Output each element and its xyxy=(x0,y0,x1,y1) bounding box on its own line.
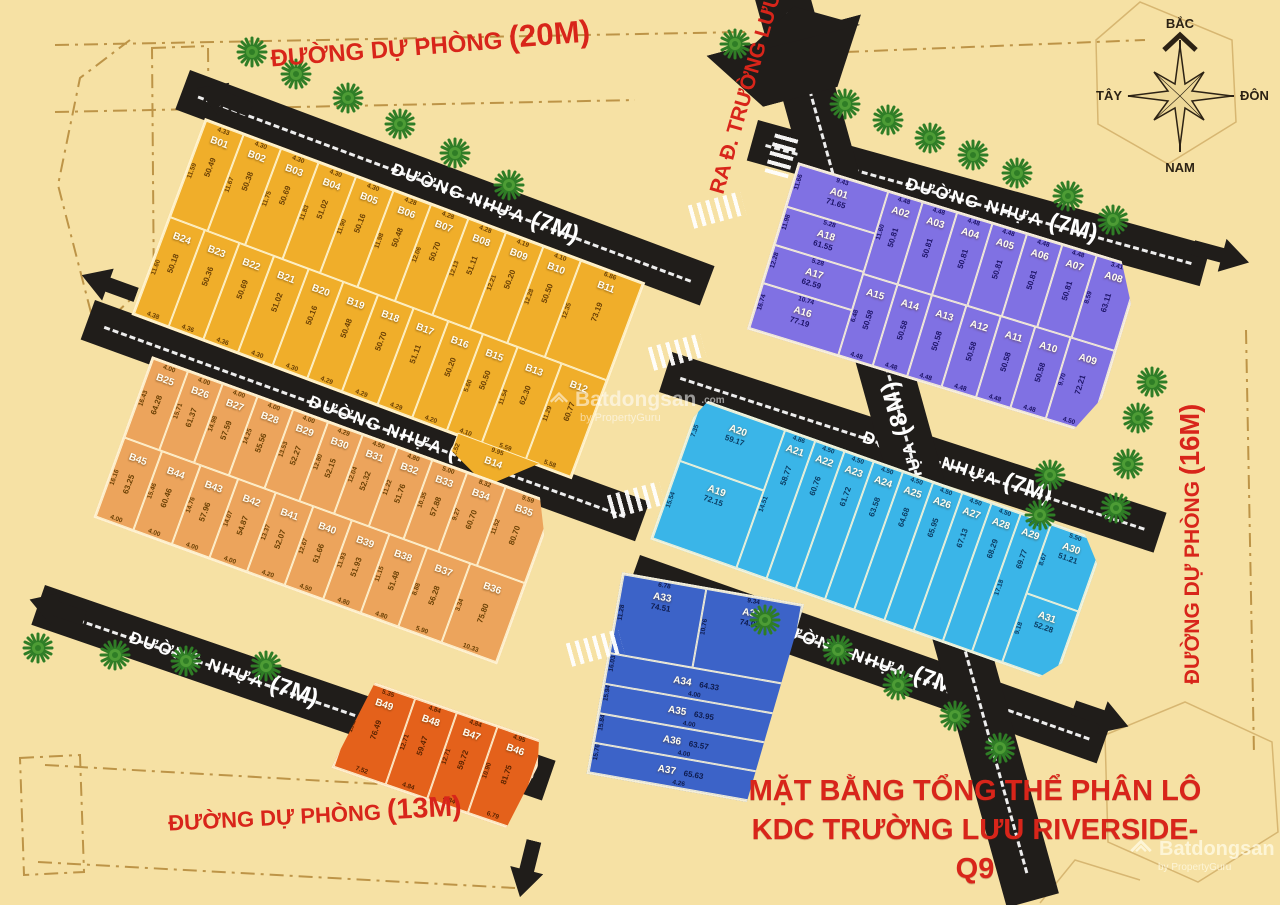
plot-id-label: B16 xyxy=(449,335,470,352)
plot-width-label: 4.28 xyxy=(441,210,455,221)
plot-id-label: A29 xyxy=(1020,526,1041,542)
compass-west-label: TÂY xyxy=(1096,88,1122,103)
plot-width-label: 4.29 xyxy=(354,388,368,399)
plot-width-label: 4.19 xyxy=(516,238,530,249)
plot-width-label: 4.30 xyxy=(291,154,305,165)
plot-id-label: A35 xyxy=(667,704,687,718)
plot-depth-label: 16.74 xyxy=(756,294,767,312)
plot-id-label: A27 xyxy=(961,505,982,521)
plot-id-label: B10 xyxy=(545,261,566,278)
plot-id-label: A13 xyxy=(934,308,955,324)
plot-area-label: 64.68 xyxy=(896,506,911,528)
plot-width-label: 4.48 xyxy=(932,207,946,217)
plot-area-label: 63.95 xyxy=(693,710,714,722)
plot-area-label: 51.02 xyxy=(315,198,330,220)
plot-area-label: 51.76 xyxy=(393,483,408,505)
plot-area-label: 80.70 xyxy=(507,524,522,546)
plot-id-label: A06 xyxy=(1029,247,1050,263)
plot-id-label: A05 xyxy=(994,237,1015,253)
plot-area-label: 50.70 xyxy=(427,240,442,262)
plot-depth-label: 15.84 xyxy=(597,714,607,731)
plot-width-label: 4.50 xyxy=(909,476,923,487)
label-reserve-road-16m: ĐƯỜNG DỰ PHÒNG (16M) xyxy=(1174,364,1206,724)
plot-width-label: 5.90 xyxy=(415,625,429,636)
plot-area-label: 57.88 xyxy=(428,495,443,517)
site-plan-map: ĐƯỜNG NHỰA (7M) ĐƯỜNG NHỰA (7M) ĐƯỜNG NH… xyxy=(0,0,1280,905)
plot-depth-label: 11.59 xyxy=(186,162,198,179)
plot-width-label: 4.38 xyxy=(146,310,160,321)
plot-width-label: 4.20 xyxy=(424,414,438,425)
plot-area-label: 52.27 xyxy=(288,445,303,467)
plot-width-label: 4.48 xyxy=(988,393,1002,403)
plot-width-label: 4.48 xyxy=(884,361,898,371)
plot-id-label: B20 xyxy=(310,283,331,300)
plot-width-label: 8.32 xyxy=(478,479,492,490)
plot-id-label: B06 xyxy=(396,205,417,222)
plot-width-label: 4.29 xyxy=(389,401,403,412)
plot-area-label: 50.16 xyxy=(352,212,367,234)
plot-area-label: 64.33 xyxy=(698,680,719,692)
plot-area-label: 51.11 xyxy=(408,344,423,365)
plot-area-label: 50.81 xyxy=(990,259,1004,281)
plot-width-label: 6.78 xyxy=(658,582,672,591)
plot-area-label: 81.75 xyxy=(499,764,514,786)
plot-width-label: 4.28 xyxy=(403,196,417,207)
plot-width-label: 4.36 xyxy=(181,323,195,334)
plot-depth-label: 8.88 xyxy=(412,582,423,596)
plot-width-label: 4.36 xyxy=(215,336,229,347)
plot-width-label: 4.26 xyxy=(672,779,686,788)
plot-area-label: 51.66 xyxy=(311,542,326,564)
plot-id-label: B21 xyxy=(275,270,296,287)
plot-id-label: A21 xyxy=(784,443,805,459)
plot-width-label: 5.50 xyxy=(1068,532,1082,543)
plot-area-label: 50.70 xyxy=(373,330,388,352)
plot-id-label: B31 xyxy=(364,448,385,465)
plot-id-label: B32 xyxy=(399,461,420,478)
plot-area-label: 52.07 xyxy=(273,529,288,551)
plot-id-label: B18 xyxy=(380,309,401,326)
plot-width-label: 4.50 xyxy=(968,497,982,508)
plot-width-label: 4.80 xyxy=(406,453,420,464)
plot-id-label: A28 xyxy=(990,516,1011,532)
plot-area-label: 50.49 xyxy=(202,156,217,178)
plot-width-label: 4.50 xyxy=(821,445,835,456)
plot-area-label: 60.77 xyxy=(562,401,577,423)
plot-depth-label: 9.18 xyxy=(1013,621,1024,635)
plot-width-label: 4.84 xyxy=(468,719,482,730)
plot-id-label: B24 xyxy=(171,231,192,248)
plot-id-label: B37 xyxy=(433,563,454,580)
title-line1: MẶT BẰNG TỔNG THỂ PHÂN LÔ xyxy=(735,772,1215,811)
plot-area-label: 56.28 xyxy=(427,585,442,607)
plot-id-label: A15 xyxy=(865,286,886,302)
plot-width-label: 9.43 xyxy=(835,177,849,187)
plot-width-label: 4.00 xyxy=(223,555,237,566)
plot-depth-label: 6.48 xyxy=(849,309,859,323)
title-line2: KDC TRƯỜNG LƯU RIVERSIDE-Q9 xyxy=(735,811,1215,889)
plot-area-label: 73.19 xyxy=(589,301,604,323)
plot-area-label: 50.48 xyxy=(339,317,354,339)
plot-id-label: B13 xyxy=(523,362,544,379)
plot-area-label: 51.02 xyxy=(269,291,284,313)
plot-id-label: A34 xyxy=(672,675,692,689)
plot-area-label: 62.30 xyxy=(517,384,532,406)
plot-width-label: 4.48 xyxy=(966,217,980,227)
plot-width-label: 9.59 xyxy=(521,494,535,505)
plot-width-label: 4.48 xyxy=(1001,228,1015,238)
plot-width-label: 5.28 xyxy=(822,219,836,229)
plot-area-label: 65.95 xyxy=(926,517,941,539)
plot-id-label: A09 xyxy=(1077,351,1098,367)
plot-id-label: B11 xyxy=(596,279,617,296)
plot-depth-label: 15.76 xyxy=(592,744,602,761)
plot-width-label: 5.58 xyxy=(543,459,557,470)
plot-area-label: 50.50 xyxy=(539,282,554,304)
plot-id-label: B29 xyxy=(294,423,315,440)
plot-id-label: B30 xyxy=(329,436,350,453)
plot-id-label: B27 xyxy=(224,398,245,415)
plot-id-label: B34 xyxy=(470,487,491,504)
plot-width-label: 4.00 xyxy=(267,402,281,413)
plot-width-label: 4.10 xyxy=(553,252,567,263)
plot-width-label: 4.20 xyxy=(261,569,275,580)
plot-width-label: 4.30 xyxy=(254,140,268,151)
plot-area-label: 50.50 xyxy=(477,369,492,391)
plot-area-label: 67.13 xyxy=(955,527,970,549)
plot-area-label: 63.11 xyxy=(1099,292,1113,313)
plot-area-label: 50.81 xyxy=(1025,269,1039,291)
plot-id-label: B15 xyxy=(484,347,505,364)
plot-area-label: 50.69 xyxy=(234,278,249,300)
plot-width-label: 4.48 xyxy=(1071,249,1085,259)
plot-area-label: 51.93 xyxy=(348,556,363,578)
plot-depth-label: 15.54 xyxy=(665,491,677,509)
plot-width-label: 4.50 xyxy=(851,455,865,466)
plot-area-label: 54.87 xyxy=(235,515,250,537)
plot-id-label: A04 xyxy=(960,226,981,242)
plot-area-label: 59.72 xyxy=(455,749,470,771)
compass-east-label: ĐÔNG xyxy=(1240,88,1268,103)
plot-depth-label: 8.67 xyxy=(1037,552,1048,566)
plot-width-label: 4.00 xyxy=(162,364,176,375)
plot-area-label: 61.72 xyxy=(837,486,852,508)
plot-id-label: B35 xyxy=(513,503,534,520)
plot-width-label: 4.50 xyxy=(298,583,312,594)
plot-area-label: 50.69 xyxy=(277,184,292,206)
plot-area-label: 50.58 xyxy=(964,340,978,362)
plot-id-label: B40 xyxy=(317,520,338,537)
plot-depth-label: 11.66 xyxy=(793,174,804,191)
plot-width-label: 4.80 xyxy=(374,610,388,621)
plot-width-label: 4.95 xyxy=(512,734,526,745)
plot-id-label: B28 xyxy=(259,410,280,427)
plot-id-label: B02 xyxy=(246,149,267,166)
plot-bottom-label: 4.84 xyxy=(401,781,415,792)
plot-id-label: B36 xyxy=(482,581,503,598)
plot-width-label: 4.80 xyxy=(336,596,350,607)
plot-width-label: 4.00 xyxy=(232,389,246,400)
plot-width-label: 4.50 xyxy=(939,487,953,498)
plot-area-label: 50.81 xyxy=(886,227,900,249)
plot-area-label: 50.58 xyxy=(860,308,874,330)
plot-area-label: 65.63 xyxy=(683,769,704,781)
plot-area-label: 50.58 xyxy=(999,351,1013,373)
map-title: MẶT BẰNG TỔNG THỂ PHÂN LÔ KDC TRƯỜNG LƯU… xyxy=(735,772,1215,889)
plot-width-label: 4.50 xyxy=(1027,518,1041,529)
plot-depth-label: 10.76 xyxy=(700,619,710,636)
plot-id-label: A07 xyxy=(1064,258,1085,274)
plot-area-label: 75.80 xyxy=(476,602,491,624)
plot-depth-label: 15.94 xyxy=(602,684,612,701)
plot-area-label: 69.77 xyxy=(1014,548,1029,570)
plot-area-label: 60.70 xyxy=(464,509,479,531)
plot-area-label: 52.32 xyxy=(358,470,373,492)
plot-id-label: A11 xyxy=(1004,329,1024,345)
compass-rose: BẮC NAM TÂY ĐÔNG xyxy=(1092,14,1268,182)
plot-depth-label: 5.60 xyxy=(463,378,474,392)
plot-area-label: 61.37 xyxy=(183,407,198,429)
plot-area-label: 50.48 xyxy=(389,226,404,248)
plot-id-label: B09 xyxy=(508,247,529,264)
plot-id-label: A23 xyxy=(843,464,864,480)
plot-id-label: A22 xyxy=(814,453,835,469)
plot-area-label: 50.58 xyxy=(1033,361,1047,383)
plot-area-label: 57.59 xyxy=(218,419,233,441)
plot-area-label: 51.11 xyxy=(464,255,479,276)
plot-width-label: 9.34 xyxy=(747,597,761,606)
plot-id-label: B26 xyxy=(189,385,210,402)
plot-depth-label: 8.59 xyxy=(1083,291,1093,305)
plot-area-label: 50.81 xyxy=(955,248,969,270)
plot-id-label: B23 xyxy=(206,244,227,261)
plot-id-label: B22 xyxy=(241,257,262,274)
plot-width-label: 10.33 xyxy=(462,642,480,654)
plot-area-label: 64.28 xyxy=(148,394,163,416)
plot-area-label: 57.96 xyxy=(197,501,212,523)
plot-width-label: 4.84 xyxy=(427,705,441,716)
plot-width-label: 4.00 xyxy=(147,527,161,538)
plot-width-label: 4.86 xyxy=(792,434,806,445)
plot-area-label: 55.56 xyxy=(253,432,268,454)
plot-id-label: A25 xyxy=(902,485,923,501)
plot-width-label: 4.29 xyxy=(319,375,333,386)
plot-area-label: 52.15 xyxy=(323,457,338,479)
plot-area-label: 68.29 xyxy=(985,538,1000,560)
plot-width-label: 4.28 xyxy=(478,224,492,235)
plot-area-label: 50.16 xyxy=(304,304,319,326)
plot-width-label: 4.50 xyxy=(998,507,1012,518)
plot-id-label: B44 xyxy=(165,465,186,482)
plot-id-label: B08 xyxy=(471,233,492,250)
plot-id-label: B49 xyxy=(374,697,395,713)
plot-width-label: 4.30 xyxy=(285,362,299,373)
plot-A33: 6.78A3374.5111.28 xyxy=(610,574,707,668)
plot-id-label: B01 xyxy=(209,135,230,152)
plot-area-label: 72.21 xyxy=(1073,373,1087,395)
plot-width-label: 4.30 xyxy=(366,182,380,193)
plot-id-label: B25 xyxy=(154,372,175,389)
plot-area-label: 50.81 xyxy=(920,237,934,259)
plot-area-label: 50.81 xyxy=(1060,280,1074,302)
plot-id-label: A26 xyxy=(931,495,952,511)
plot-width-label: 4.50 xyxy=(880,466,894,477)
plot-depth-label: 16.43 xyxy=(138,389,150,407)
plot-id-label: A10 xyxy=(1038,339,1059,355)
plot-area-label: 63.25 xyxy=(121,473,136,495)
plot-width-label: 5.00 xyxy=(441,465,455,476)
plot-width-label: 4.29 xyxy=(336,427,350,438)
plot-width-label: 4.48 xyxy=(953,383,967,393)
plot-id-label: B17 xyxy=(414,322,435,339)
plot-id-label: A08 xyxy=(1103,270,1124,286)
plot-width-label: 4.48 xyxy=(919,372,933,382)
plot-id-label: B14 xyxy=(483,455,504,472)
plot-area-label: 63.57 xyxy=(688,740,709,752)
plot-id-label: B19 xyxy=(345,296,366,313)
plot-id-label: B12 xyxy=(568,379,589,396)
plot-id-label: B45 xyxy=(127,452,148,469)
plot-width-label: 4.00 xyxy=(197,376,211,387)
plot-id-label: B41 xyxy=(279,507,300,524)
plot-id-label: B47 xyxy=(461,727,482,743)
plot-width-label: 4.00 xyxy=(302,414,316,425)
plot-area-label: 59.47 xyxy=(415,735,430,757)
plot-id-label: B48 xyxy=(420,713,441,729)
plot-id-label: B38 xyxy=(392,548,413,565)
plot-depth-label: 7.35 xyxy=(690,424,701,438)
plot-id-label: B05 xyxy=(358,191,379,208)
plot-area-label: 60.76 xyxy=(808,475,823,497)
plot-area-label: 50.20 xyxy=(502,268,517,290)
plot-depth-label: 9.27 xyxy=(452,507,463,521)
plot-id-label: B07 xyxy=(433,219,454,236)
plot-bottom-label: 6.79 xyxy=(486,810,500,821)
plot-depth-label: 16.16 xyxy=(109,468,121,486)
plot-area-label: 50.38 xyxy=(240,170,255,192)
plot-width-label: 5.35 xyxy=(381,688,395,699)
plot-id-label: A03 xyxy=(925,215,946,231)
plot-area-label: 58.77 xyxy=(778,465,793,487)
plot-width-label: 4.00 xyxy=(185,541,199,552)
plot-area-label: 50.20 xyxy=(443,356,458,378)
plot-width-label: 4.48 xyxy=(1036,239,1050,249)
plot-width-label: 4.33 xyxy=(216,126,230,137)
compass-south-label: NAM xyxy=(1165,160,1195,175)
plot-area-label: 50.58 xyxy=(895,319,909,341)
plot-id-label: B39 xyxy=(354,534,375,551)
plot-depth-label: 3.34 xyxy=(455,598,466,612)
plot-area-label: 50.18 xyxy=(165,252,180,274)
plot-width-label: 4.48 xyxy=(849,351,863,361)
plot-width-label: 4.00 xyxy=(109,514,123,525)
compass-north-label: BẮC xyxy=(1166,16,1195,31)
plot-id-label: B43 xyxy=(203,479,224,496)
plot-id-label: B03 xyxy=(283,163,304,180)
plot-id-label: B33 xyxy=(434,474,455,491)
plot-depth-label: 9.70 xyxy=(1057,372,1067,386)
plot-depth-label: 16.03 xyxy=(608,655,618,672)
plot-id-label: A36 xyxy=(662,734,682,748)
plot-width-label: 4.30 xyxy=(328,168,342,179)
plot-width-label: 3.41 xyxy=(1110,261,1124,271)
plot-depth-label: 11.28 xyxy=(617,605,627,622)
plot-area-label: 76.49 xyxy=(368,719,383,741)
plot-id-label: B04 xyxy=(321,177,342,194)
plot-id-label: A14 xyxy=(900,297,921,313)
plot-width-label: 4.48 xyxy=(1022,404,1036,414)
plot-depth-label: 11.60 xyxy=(874,224,885,241)
plot-width-label: 4.50 xyxy=(1062,416,1076,426)
plot-area-label: 51.48 xyxy=(386,570,401,592)
plot-width-label: 4.30 xyxy=(250,349,264,360)
plot-bottom-label: 7.52 xyxy=(354,765,368,776)
plot-id-label: A12 xyxy=(969,318,990,334)
plot-area-label: 50.58 xyxy=(930,330,944,352)
plot-area-label: 63.58 xyxy=(867,496,882,518)
plot-id-label: A02 xyxy=(890,205,911,221)
plot-width-label: 6.86 xyxy=(603,271,617,282)
plot-id-label: B42 xyxy=(241,493,262,510)
plot-width-label: 4.48 xyxy=(897,196,911,206)
plot-id-label: A24 xyxy=(873,474,894,490)
plot-depth-label: 11.98 xyxy=(781,213,792,230)
plot-depth-label: 11.60 xyxy=(150,258,162,275)
plot-width-label: 5.28 xyxy=(811,257,825,267)
plot-id-label: B46 xyxy=(505,742,526,758)
plot-area-label: 60.46 xyxy=(159,487,174,509)
plot-area-label: 50.36 xyxy=(200,265,215,287)
plot-id-label: A37 xyxy=(657,764,677,778)
plot-depth-label: 12.28 xyxy=(769,251,780,269)
plot-width-label: 4.50 xyxy=(371,440,385,451)
